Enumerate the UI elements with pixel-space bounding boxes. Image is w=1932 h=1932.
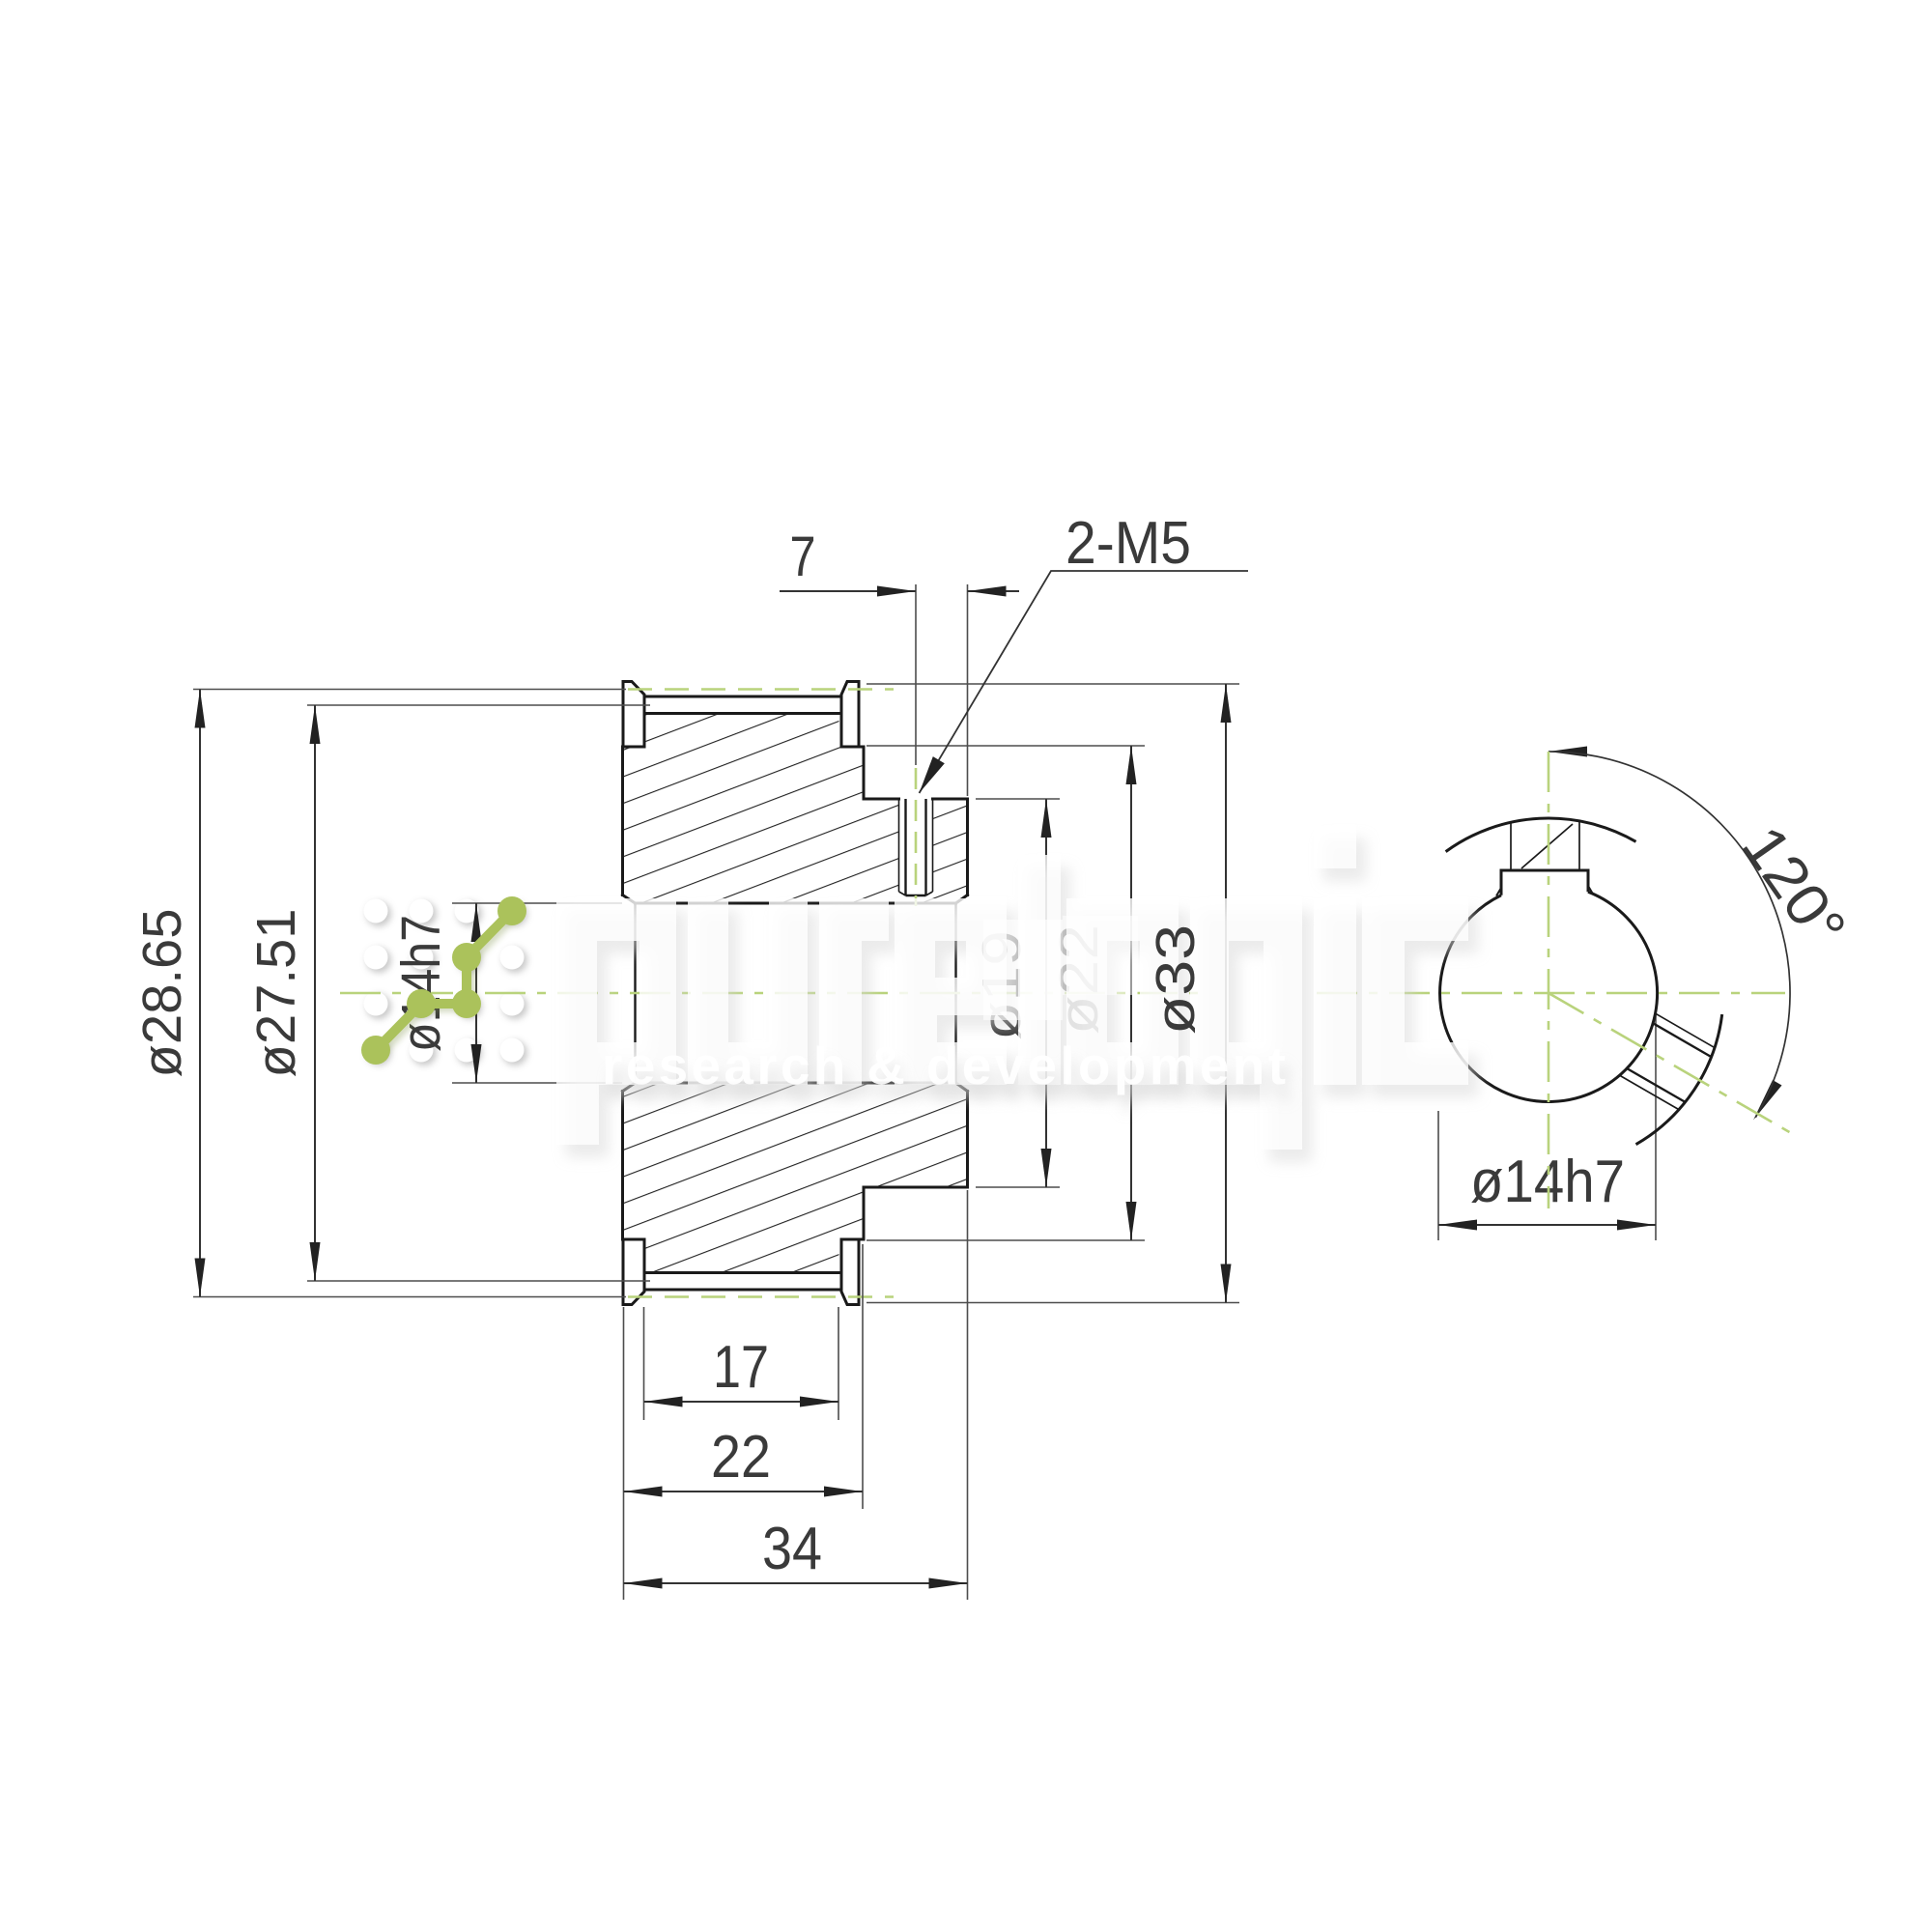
svg-text:ø27.51: ø27.51 (245, 909, 307, 1078)
svg-text:34: 34 (762, 1516, 822, 1582)
svg-text:ø28.65: ø28.65 (131, 909, 193, 1078)
svg-text:ø33: ø33 (1145, 924, 1207, 1035)
svg-text:research & development: research & development (602, 1036, 1286, 1095)
svg-text:22: 22 (711, 1424, 771, 1491)
svg-text:7: 7 (790, 526, 816, 588)
svg-text:2-M5: 2-M5 (1065, 510, 1191, 577)
svg-text:120°: 120° (1729, 814, 1859, 959)
svg-text:17: 17 (713, 1334, 769, 1401)
